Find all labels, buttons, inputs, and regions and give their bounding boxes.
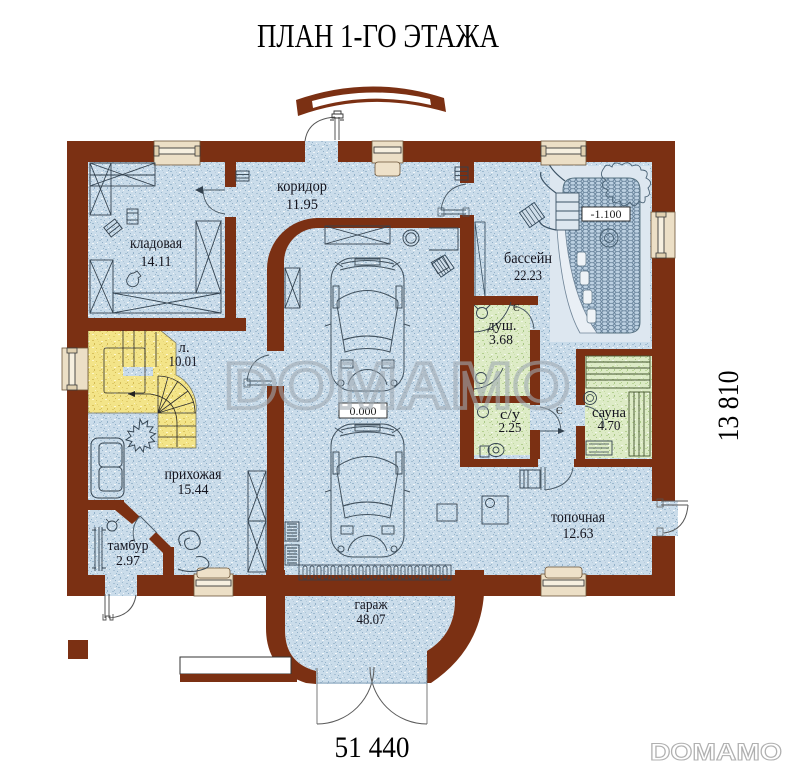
svg-text:51 440: 51 440 — [335, 731, 410, 764]
svg-text:кладовая: кладовая — [130, 235, 183, 252]
svg-text:коридор: коридор — [277, 178, 327, 195]
svg-text:48.07: 48.07 — [357, 612, 386, 628]
svg-text:DOMAMO: DOMAMO — [650, 739, 782, 766]
svg-text:12.63: 12.63 — [563, 526, 594, 542]
svg-text:3.68: 3.68 — [489, 333, 513, 348]
svg-text:гараж: гараж — [355, 597, 389, 613]
svg-text:душ.: душ. — [488, 318, 517, 334]
svg-text:-1.100: -1.100 — [591, 207, 622, 221]
svg-text:4.70: 4.70 — [598, 419, 621, 434]
svg-text:топочная: топочная — [551, 509, 606, 526]
svg-text:ПЛАН 1-ГО ЭТАЖА: ПЛАН 1-ГО ЭТАЖА — [257, 18, 499, 55]
svg-text:14.11: 14.11 — [141, 254, 172, 270]
svg-text:2.97: 2.97 — [116, 554, 140, 569]
svg-text:13 810: 13 810 — [712, 371, 745, 442]
svg-text:10.01: 10.01 — [169, 354, 198, 370]
svg-text:11.95: 11.95 — [286, 197, 318, 213]
svg-text:2.25: 2.25 — [499, 421, 522, 436]
svg-text:тамбур: тамбур — [108, 538, 149, 554]
svg-text:15.44: 15.44 — [178, 482, 209, 498]
svg-text:Є: Є — [513, 303, 520, 314]
svg-text:22.23: 22.23 — [514, 268, 542, 284]
svg-text:бассейн: бассейн — [504, 250, 552, 267]
svg-text:DOMAMO: DOMAMO — [224, 349, 570, 422]
svg-text:прихожая: прихожая — [165, 466, 223, 483]
